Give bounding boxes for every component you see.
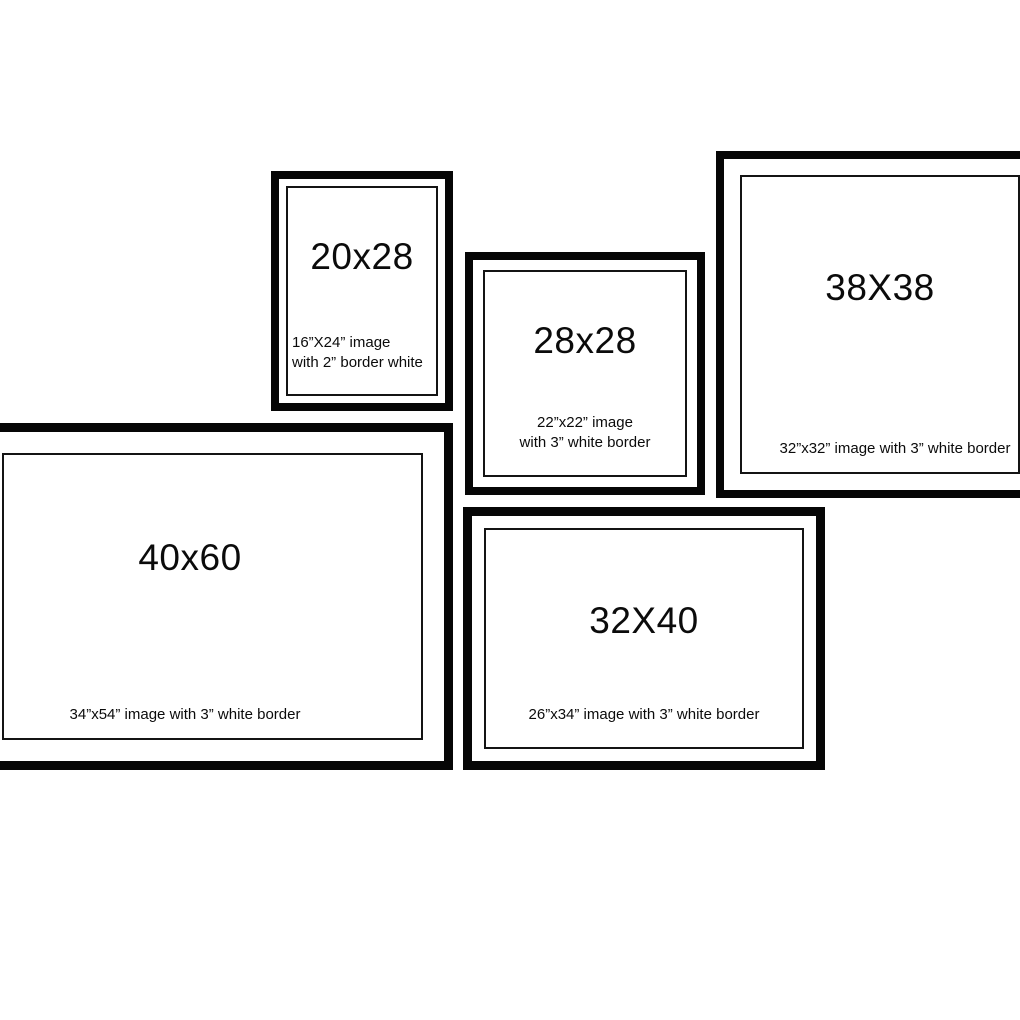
frame-38x38: 38X38 32”x32” image with 3” white border [716, 151, 1020, 498]
frame-38x38-description: 32”x32” image with 3” white border [772, 439, 1018, 459]
frame-32x40-size-label: 32X40 [486, 602, 802, 639]
frame-32x40: 32X40 26”x34” image with 3” white border [463, 507, 825, 770]
frame-40x60-description: 34”x54” image with 3” white border [4, 705, 366, 725]
frame-20x28-size-label: 20x28 [288, 238, 436, 275]
frame-28x28-description: 22”x22” image with 3” white border [485, 413, 685, 452]
frame-40x60-size-label: 40x60 [4, 539, 376, 576]
frame-20x28-image-area: 20x28 16”X24” image with 2” border white [286, 186, 438, 396]
frame-28x28: 28x28 22”x22” image with 3” white border [465, 252, 705, 495]
frame-38x38-image-area: 38X38 32”x32” image with 3” white border [740, 175, 1020, 474]
frame-28x28-image-area: 28x28 22”x22” image with 3” white border [483, 270, 687, 477]
frame-38x38-size-label: 38X38 [742, 269, 1018, 306]
frame-40x60: 40x60 34”x54” image with 3” white border [0, 423, 453, 770]
frame-32x40-description: 26”x34” image with 3” white border [486, 705, 802, 725]
frame-40x60-image-area: 40x60 34”x54” image with 3” white border [2, 453, 423, 740]
frame-20x28-description: 16”X24” image with 2” border white [292, 333, 423, 372]
frame-size-diagram: 20x28 16”X24” image with 2” border white… [0, 0, 1020, 1020]
frame-20x28: 20x28 16”X24” image with 2” border white [271, 171, 453, 411]
frame-32x40-image-area: 32X40 26”x34” image with 3” white border [484, 528, 804, 749]
frame-28x28-size-label: 28x28 [485, 322, 685, 359]
